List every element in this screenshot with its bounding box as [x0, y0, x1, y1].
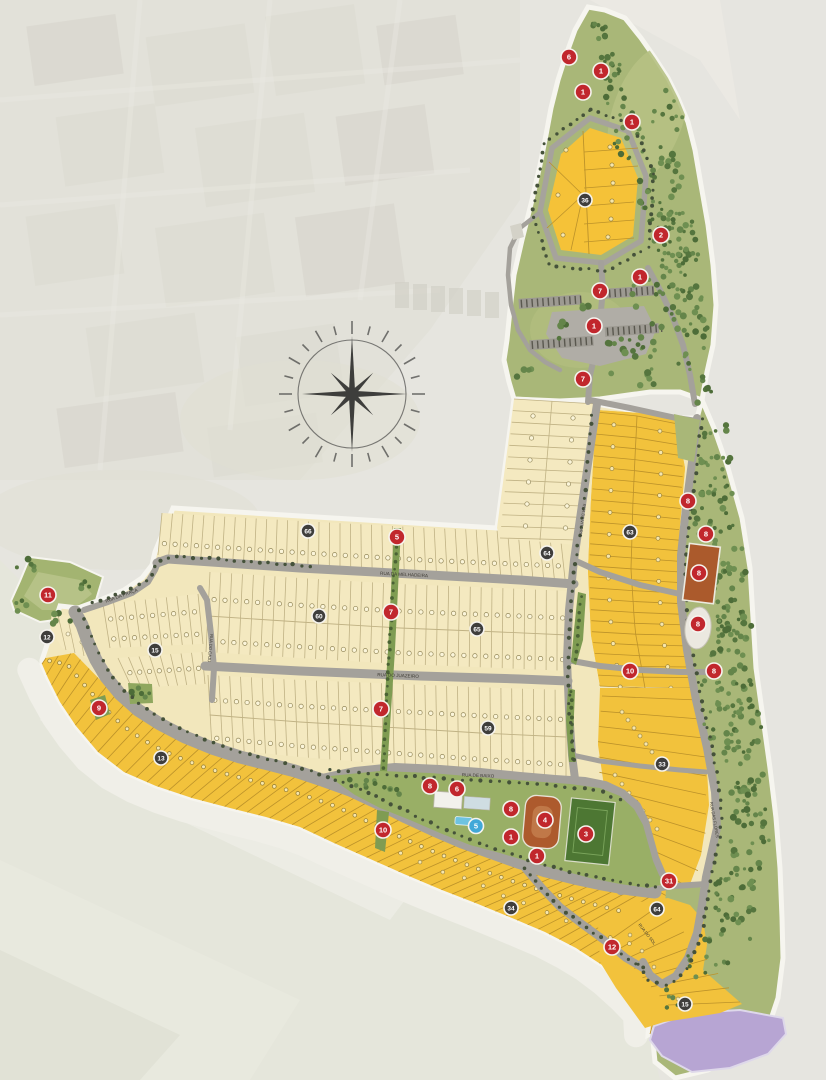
svg-text:1: 1 [509, 833, 513, 842]
svg-text:12: 12 [43, 634, 51, 641]
svg-text:31: 31 [665, 877, 673, 886]
svg-text:15: 15 [151, 647, 159, 654]
svg-text:7: 7 [598, 287, 602, 296]
svg-text:63: 63 [626, 529, 634, 536]
svg-text:5: 5 [395, 533, 399, 542]
svg-text:1: 1 [599, 67, 603, 76]
svg-text:6: 6 [455, 785, 459, 794]
svg-text:5: 5 [474, 822, 478, 831]
svg-text:2: 2 [659, 231, 663, 240]
svg-text:8: 8 [712, 667, 716, 676]
svg-text:8: 8 [509, 805, 513, 814]
svg-text:8: 8 [428, 782, 432, 791]
svg-text:33: 33 [658, 761, 666, 768]
svg-text:9: 9 [97, 704, 101, 713]
svg-text:11: 11 [44, 591, 52, 600]
svg-text:6: 6 [567, 53, 571, 62]
svg-text:60: 60 [315, 613, 323, 620]
svg-text:13: 13 [157, 755, 165, 762]
svg-text:10: 10 [626, 667, 634, 676]
svg-text:1: 1 [581, 88, 585, 97]
svg-text:34: 34 [507, 905, 515, 912]
svg-text:8: 8 [686, 497, 690, 506]
svg-text:1: 1 [535, 852, 539, 861]
svg-text:7: 7 [379, 705, 383, 714]
svg-text:15: 15 [681, 1001, 689, 1008]
svg-text:7: 7 [389, 608, 393, 617]
svg-text:66: 66 [304, 528, 312, 535]
svg-text:59: 59 [484, 725, 492, 732]
svg-text:65: 65 [473, 626, 481, 633]
svg-text:7: 7 [581, 375, 585, 384]
svg-text:12: 12 [608, 943, 616, 952]
svg-text:64: 64 [653, 906, 661, 913]
svg-text:1: 1 [592, 322, 596, 331]
svg-text:10: 10 [379, 826, 387, 835]
svg-text:8: 8 [697, 569, 701, 578]
svg-text:1: 1 [638, 273, 642, 282]
svg-text:1: 1 [630, 118, 634, 127]
svg-text:8: 8 [704, 530, 708, 539]
svg-text:64: 64 [543, 550, 551, 557]
svg-text:36: 36 [581, 197, 589, 204]
svg-text:3: 3 [584, 830, 588, 839]
svg-text:8: 8 [696, 620, 700, 629]
